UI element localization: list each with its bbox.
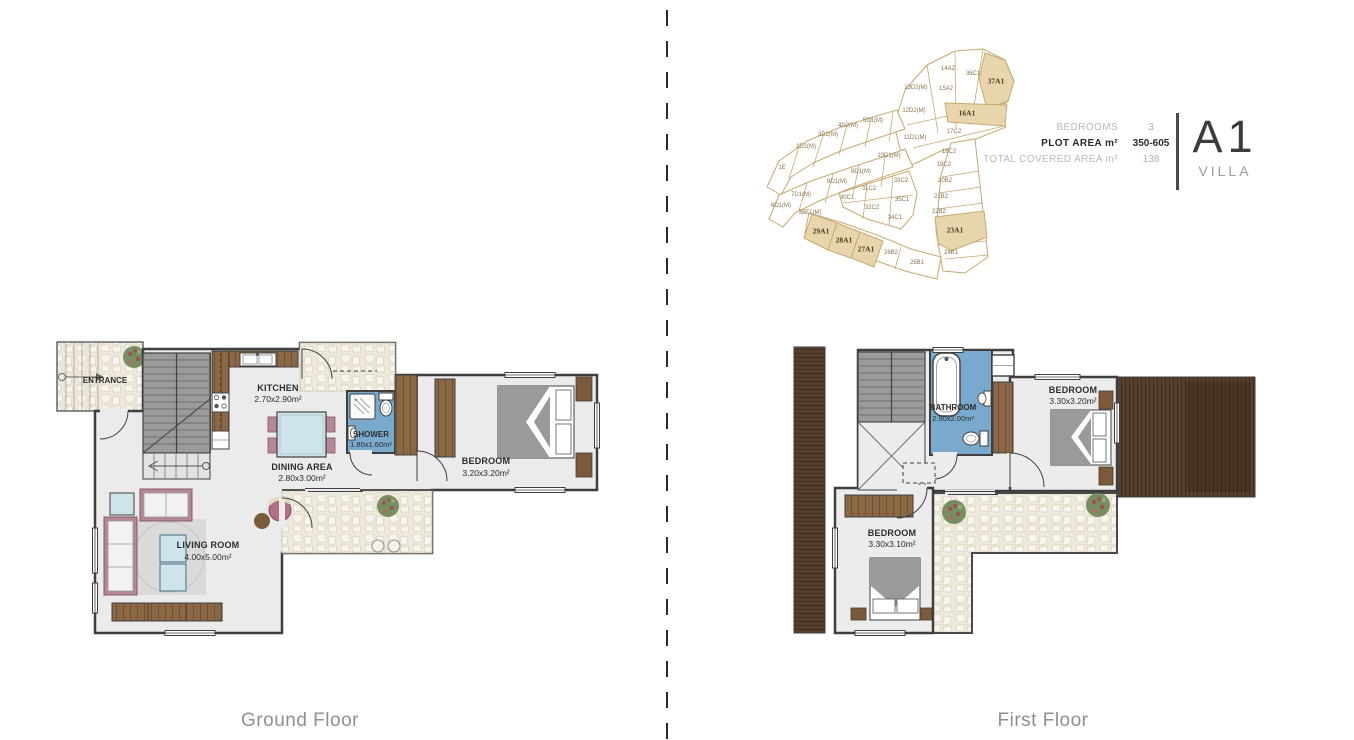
deck-left: [794, 347, 825, 633]
label-bedroom-left-dims: 3.30x3.10m²: [868, 539, 915, 549]
plant-icon: [1086, 493, 1110, 517]
spec-label-covered-area: TOTAL COVERED AREA m²: [980, 154, 1118, 165]
label-bedroom-right-dims: 3.30x3.20m²: [1049, 396, 1096, 406]
toilet-bowl: [380, 400, 392, 416]
first-floor-plan: BATHROOM 2.90x2.00m² BEDROOM 3.30x3.20m²…: [785, 333, 1354, 653]
void-dashed: [903, 463, 935, 483]
label-dining: DINING AREA: [271, 462, 333, 472]
closet: [845, 495, 913, 517]
staircase: [143, 353, 210, 479]
unit-type-code: A1: [1186, 114, 1264, 159]
label-bathroom: BATHROOM: [930, 403, 977, 412]
sliding-door: [305, 487, 363, 493]
caption-first-floor: First Floor: [998, 710, 1089, 732]
label-living: LIVING ROOM: [177, 540, 240, 550]
patio-top: [300, 343, 395, 391]
side-table: [110, 493, 134, 515]
spec-row-bedrooms: BEDROOMS 3: [980, 122, 1184, 138]
label-kitchen-dims: 2.70x2.90m²: [254, 394, 301, 404]
toilet-tank: [379, 393, 393, 400]
spec-label-bedrooms: BEDROOMS: [980, 122, 1118, 133]
spec-value-plot-area: 350-605: [1118, 138, 1184, 149]
unit-type-class: VILLA: [1186, 163, 1264, 179]
coffee-table: [160, 564, 186, 591]
label-bedroom-left: BEDROOM: [868, 528, 916, 538]
patio-table: [254, 513, 270, 529]
info-panel: BEDROOMS 3 PLOT AREA m² 350-605 TOTAL CO…: [980, 122, 1184, 170]
tv-console: [112, 603, 222, 621]
ground-floor-plan: ENTRANCE KITCHEN 2.70x2.90m² DINING AREA…: [50, 333, 610, 645]
patio-bottom: [282, 490, 432, 553]
wardrobe: [993, 382, 1013, 453]
type-divider-bar: [1176, 113, 1179, 190]
toilet-tank: [980, 431, 988, 446]
label-shower-dims: 1.80x1.60m²: [350, 440, 392, 449]
spec-row-covered-area: TOTAL COVERED AREA m² 138: [980, 154, 1184, 170]
label-dining-dims: 2.80x3.00m²: [278, 473, 325, 483]
label-bedroom-gf: BEDROOM: [462, 456, 510, 466]
siteplan-plot-37A1-shape: [979, 53, 1014, 109]
label-bathroom-dims: 2.90x2.00m²: [932, 414, 974, 423]
toilet-bowl: [963, 432, 979, 445]
spec-value-bedrooms: 3: [1118, 122, 1184, 133]
unit-type-block: A1 VILLA: [1186, 114, 1264, 179]
plant-icon: [123, 346, 145, 368]
label-shower: SHOWER: [353, 430, 389, 439]
spec-row-plot-area: PLOT AREA m² 350-605: [980, 138, 1184, 154]
label-entrance: ENTRANCE: [83, 376, 128, 385]
dining-set: [268, 412, 335, 457]
wardrobe: [395, 375, 417, 455]
plant-icon: [942, 500, 966, 524]
center-divider-line: [658, 0, 676, 740]
label-living-dims: 4.00x5.00m²: [184, 552, 231, 562]
spec-label-plot-area: PLOT AREA m²: [980, 138, 1118, 149]
bedroom-wardrobe: [435, 379, 455, 457]
label-bedroom-right: BEDROOM: [1049, 385, 1097, 395]
label-kitchen: KITCHEN: [257, 383, 298, 393]
brochure-page: 1E2D2(M)3D2(M)4D2(M)5D1(M)6D1(M)7D1(M)8D…: [0, 0, 1354, 740]
plant-icon: [377, 495, 399, 517]
caption-ground-floor: Ground Floor: [241, 710, 359, 732]
label-bedroom-gf-dims: 3.20x3.20m²: [462, 468, 509, 478]
spec-value-covered-area: 138: [1118, 154, 1184, 165]
